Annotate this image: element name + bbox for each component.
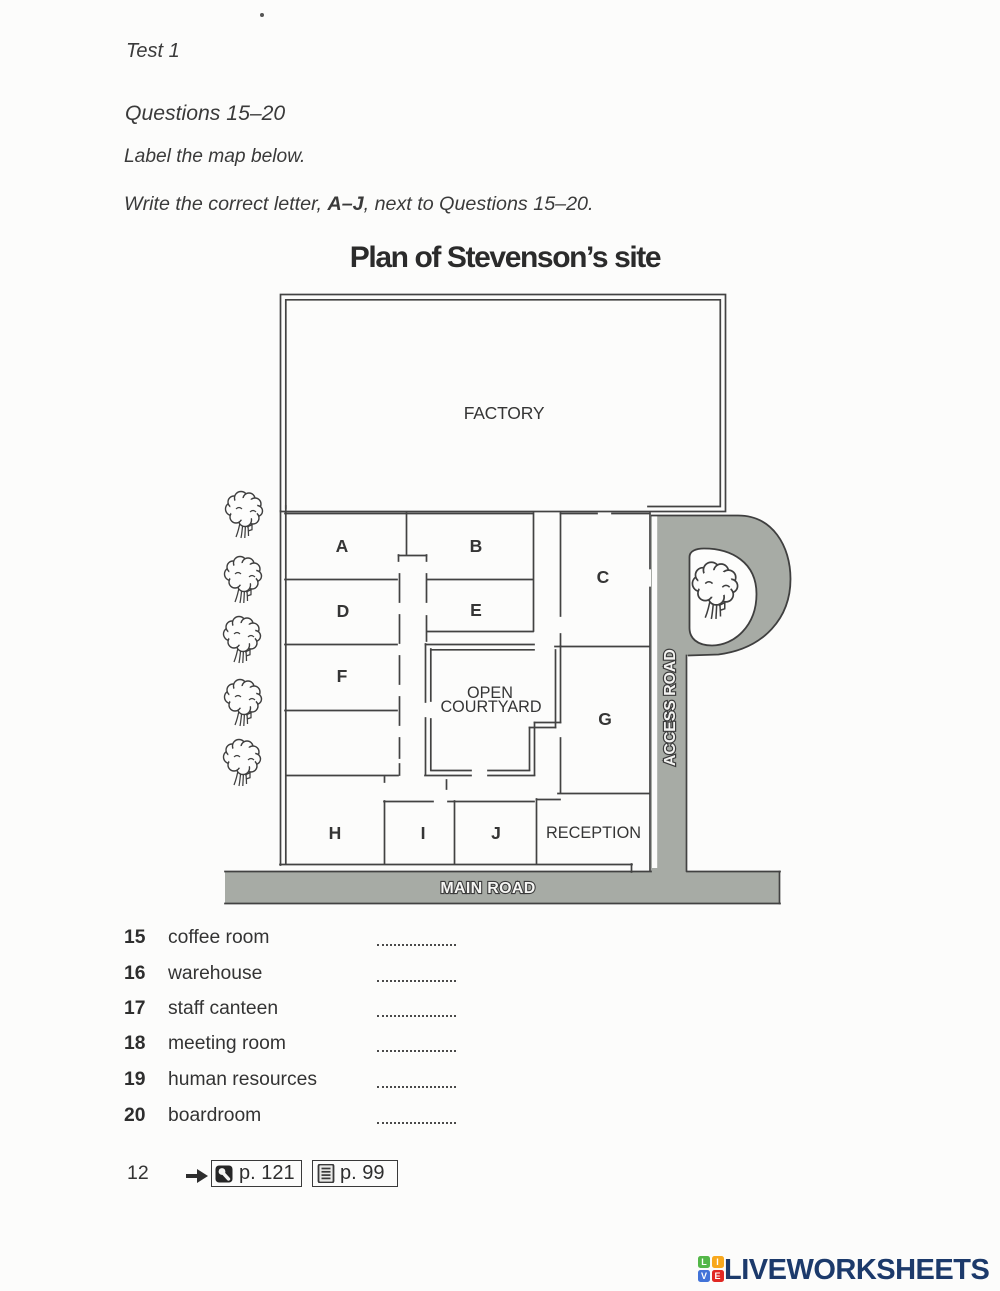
- svg-text:FACTORY: FACTORY: [464, 403, 545, 423]
- svg-text:B: B: [470, 536, 483, 556]
- svg-text:MAIN ROAD: MAIN ROAD: [440, 880, 535, 897]
- svg-text:J: J: [491, 823, 501, 843]
- svg-text:C: C: [597, 567, 610, 587]
- svg-text:H: H: [329, 823, 342, 843]
- svg-text:E: E: [470, 600, 482, 620]
- svg-text:I: I: [421, 823, 426, 843]
- svg-text:D: D: [337, 601, 350, 621]
- svg-text:COURTYARD: COURTYARD: [440, 698, 541, 716]
- svg-text:F: F: [337, 666, 348, 686]
- svg-text:ACCESS ROAD: ACCESS ROAD: [662, 649, 679, 766]
- svg-text:G: G: [598, 709, 612, 729]
- svg-text:RECEPTION: RECEPTION: [546, 824, 641, 842]
- svg-text:A: A: [336, 536, 349, 556]
